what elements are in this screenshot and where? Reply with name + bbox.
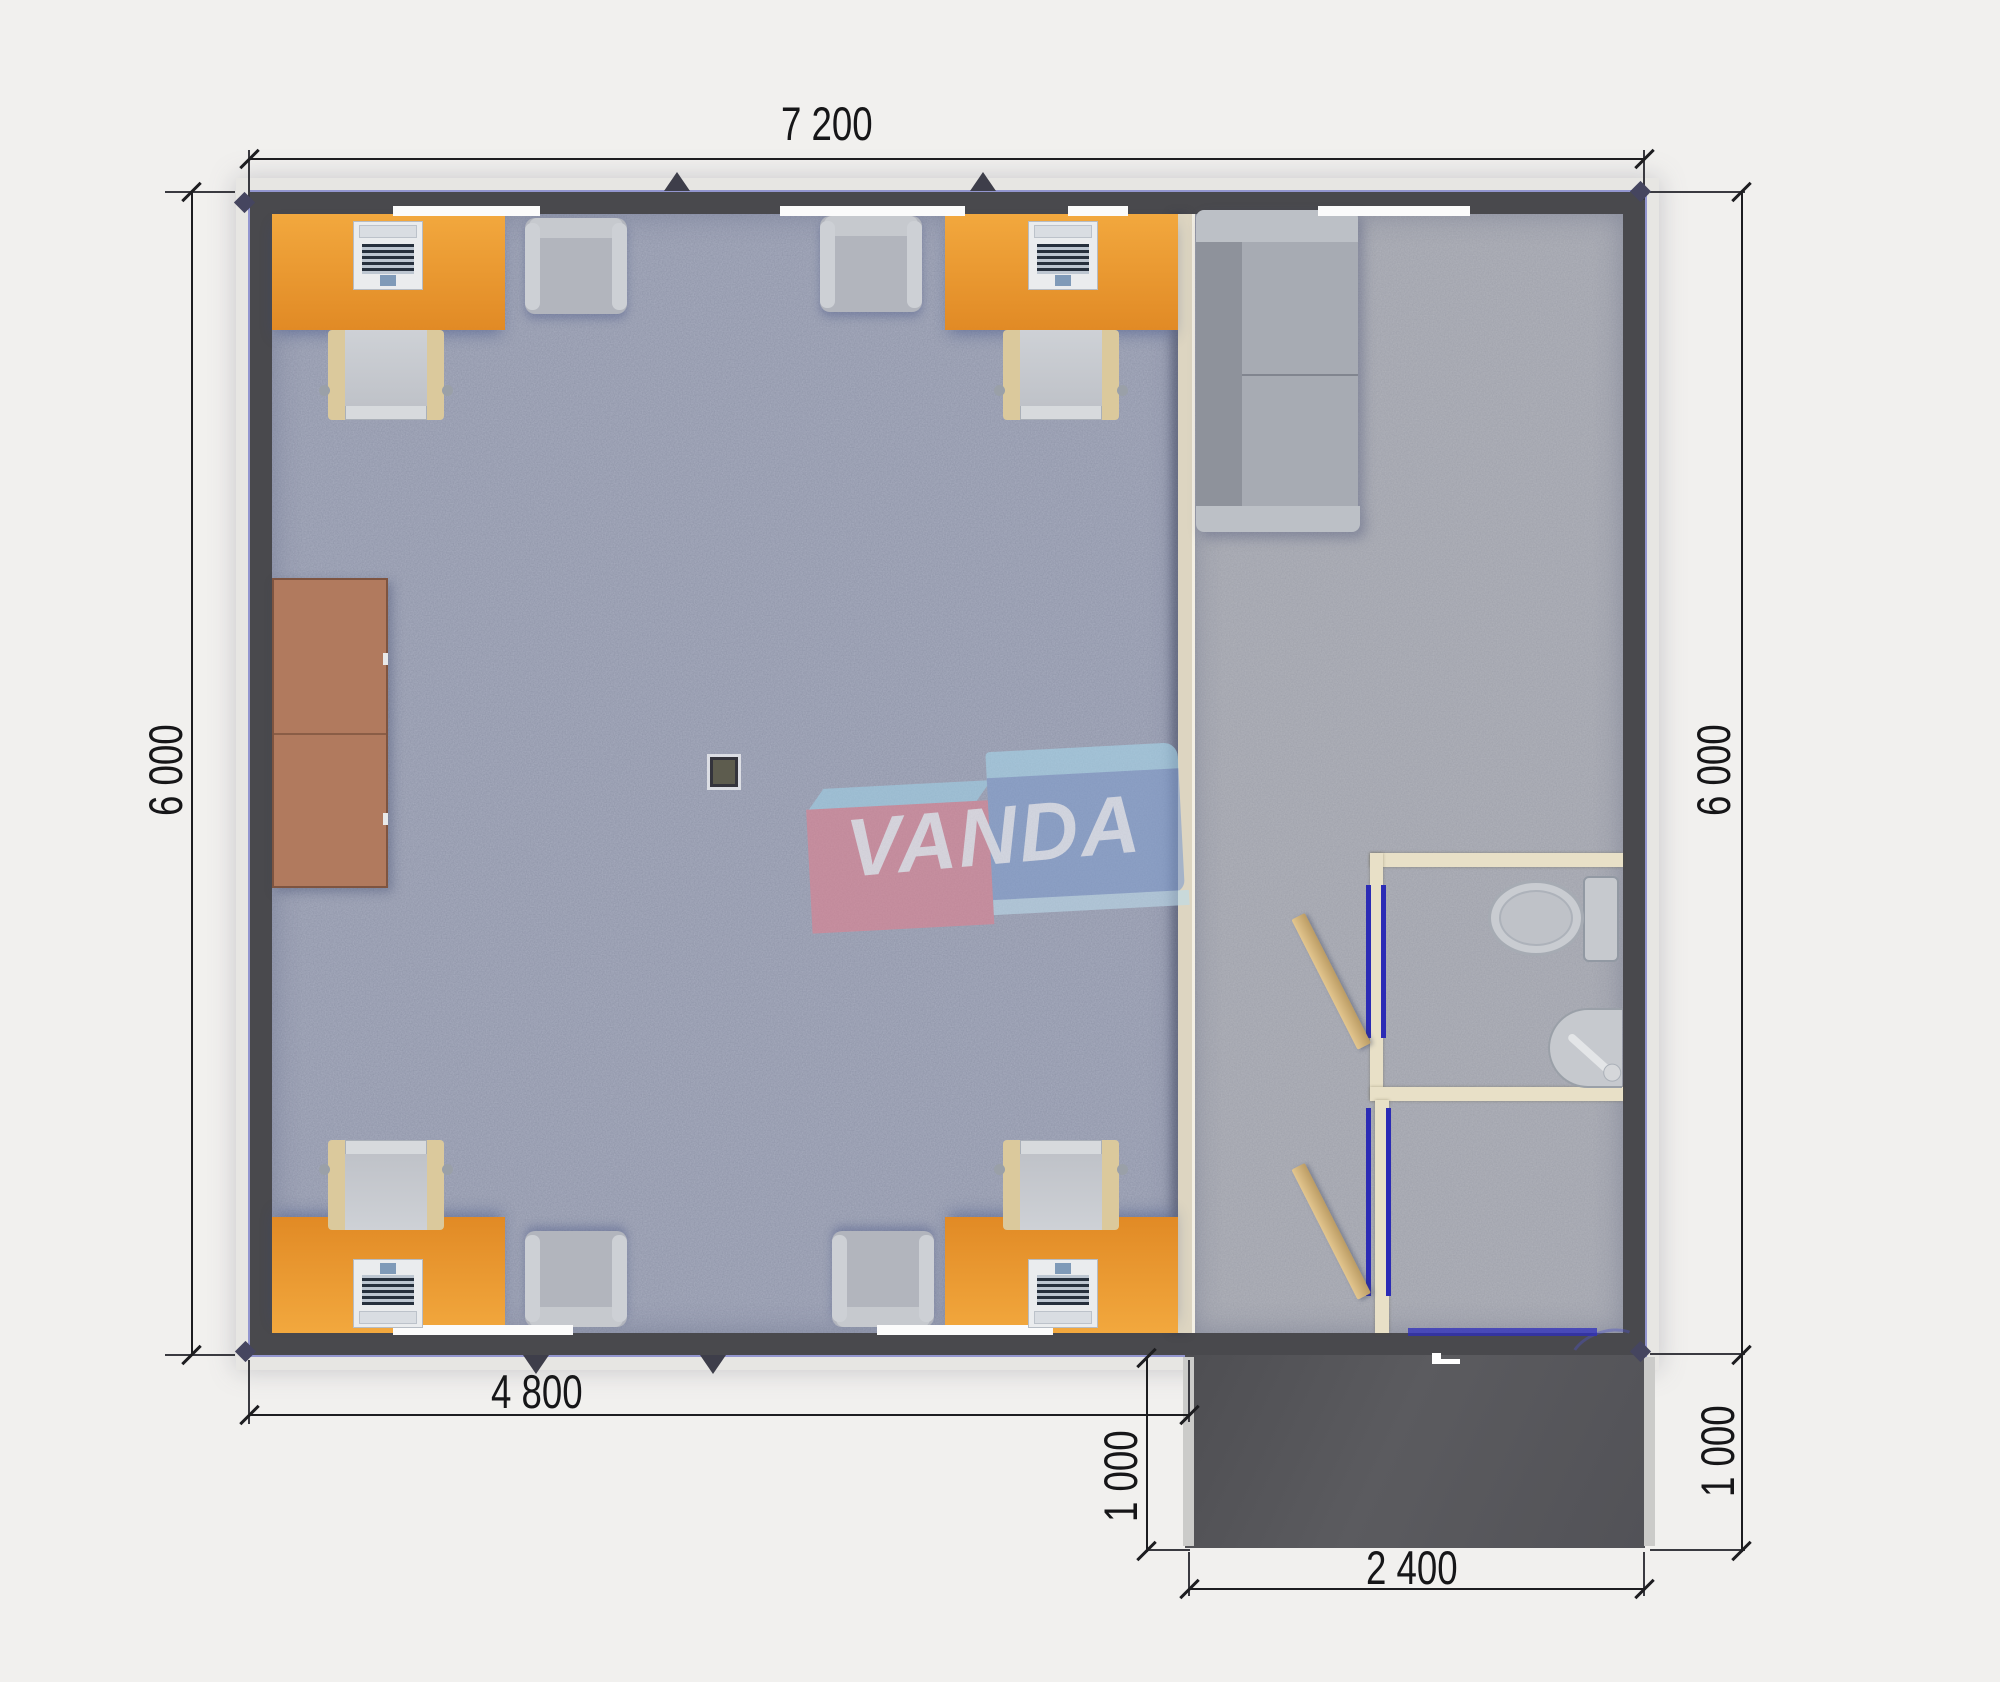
extension-line [165,191,235,193]
entrance-porch [1185,1355,1645,1548]
dimension-line-top [250,158,1645,160]
desktop-computer [353,221,423,290]
office-chair [328,1140,444,1230]
bathroom-wall-bottom [1370,1087,1623,1101]
extension-line [1650,191,1745,193]
sofa-cushion [1242,376,1358,510]
toilet-tank [1583,876,1619,962]
dimension-line-bottom [250,1414,1190,1416]
desktop-computer [1028,1259,1098,1328]
armrest [525,1235,540,1322]
armchair [820,216,922,312]
dimension-label-left-height: 6 000 [140,665,190,875]
keyboard [1034,241,1092,277]
office-chair [328,330,444,420]
porch-step [1644,1357,1655,1546]
dimension-label-interior-width: 4 800 [417,1368,657,1414]
window [1068,206,1128,216]
door-frame [1366,1108,1371,1296]
desktop-computer [353,1259,423,1328]
desktop-computer [1028,221,1098,290]
door-frame [1386,1108,1391,1296]
window [1318,206,1470,216]
keyboard [359,1272,417,1308]
dimension-label-porch-depth-right: 1 000 [1694,1346,1740,1556]
support-column [710,757,738,787]
armchair [525,1231,627,1327]
armrest [919,1235,934,1322]
vanda-watermark: VANDA [798,740,1189,942]
dimension-label-porch-depth: 1 000 [1097,1371,1143,1581]
module-joint-arrow [700,1355,726,1374]
keyboard [359,241,417,277]
sofa-backrest [1196,242,1242,510]
module-joint-arrow [664,172,690,191]
sofa-cushion [1242,242,1358,376]
extension-line [1148,1549,1190,1551]
dimension-line-right [1741,192,1743,1355]
entrance-door-opening [1408,1328,1597,1336]
armrest [612,223,627,310]
armrest [612,1235,627,1322]
window [780,206,965,216]
sofa [1196,210,1360,532]
office-chair [1003,1140,1119,1230]
armrest [832,1235,847,1322]
sofa-armrest [1196,506,1360,532]
dimension-label-top-width: 7 200 [697,98,957,148]
entrance-door-mark [1432,1353,1460,1364]
dimension-label-right-height: 6 000 [1688,665,1738,875]
keyboard [1034,1272,1092,1308]
chair-seat [1020,1154,1102,1230]
toilet [1488,880,1584,956]
armrest [525,223,540,310]
door-frame [1381,885,1386,1038]
chair-seat [345,330,427,406]
door-frame [1366,885,1371,1038]
chair-seat [345,1154,427,1230]
armchair [832,1231,934,1327]
armchair [525,218,627,314]
module-joint-arrow [970,172,996,191]
bathroom-wall-top [1370,853,1623,867]
armrest [907,221,922,308]
chair-seat [1020,330,1102,406]
window [393,206,540,216]
armrest [820,221,835,308]
extension-line [165,1354,235,1356]
floor-plan: 7 200 6 000 6 000 4 800 1 000 2 400 1 00… [0,0,2000,1682]
office-chair [1003,330,1119,420]
dimension-label-porch-width: 2 400 [1292,1544,1532,1590]
window [877,1325,1053,1335]
storage-cabinet [272,578,388,888]
